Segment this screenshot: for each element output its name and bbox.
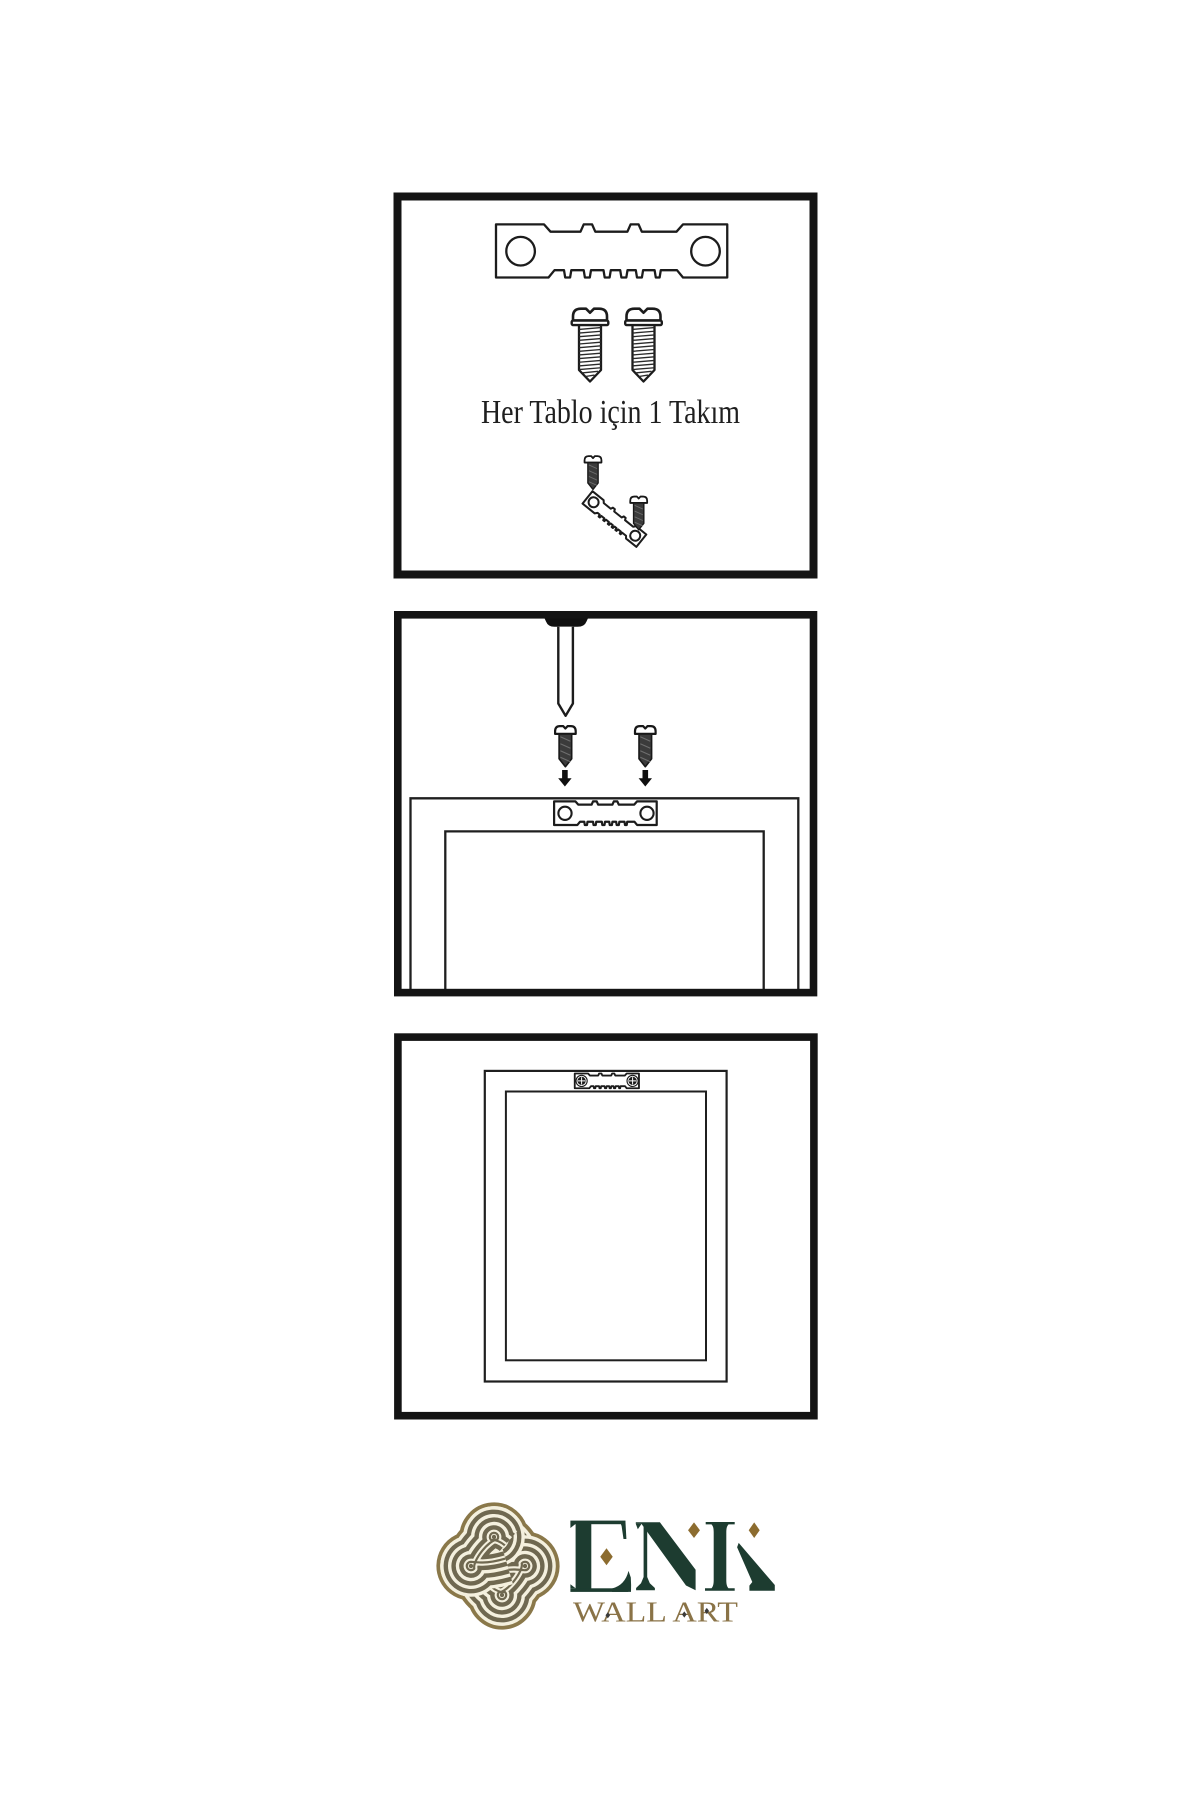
svg-text:WALL ART: WALL ART xyxy=(573,1596,738,1628)
svg-text:Her Tablo için 1 Takım: Her Tablo için 1 Takım xyxy=(481,394,740,431)
